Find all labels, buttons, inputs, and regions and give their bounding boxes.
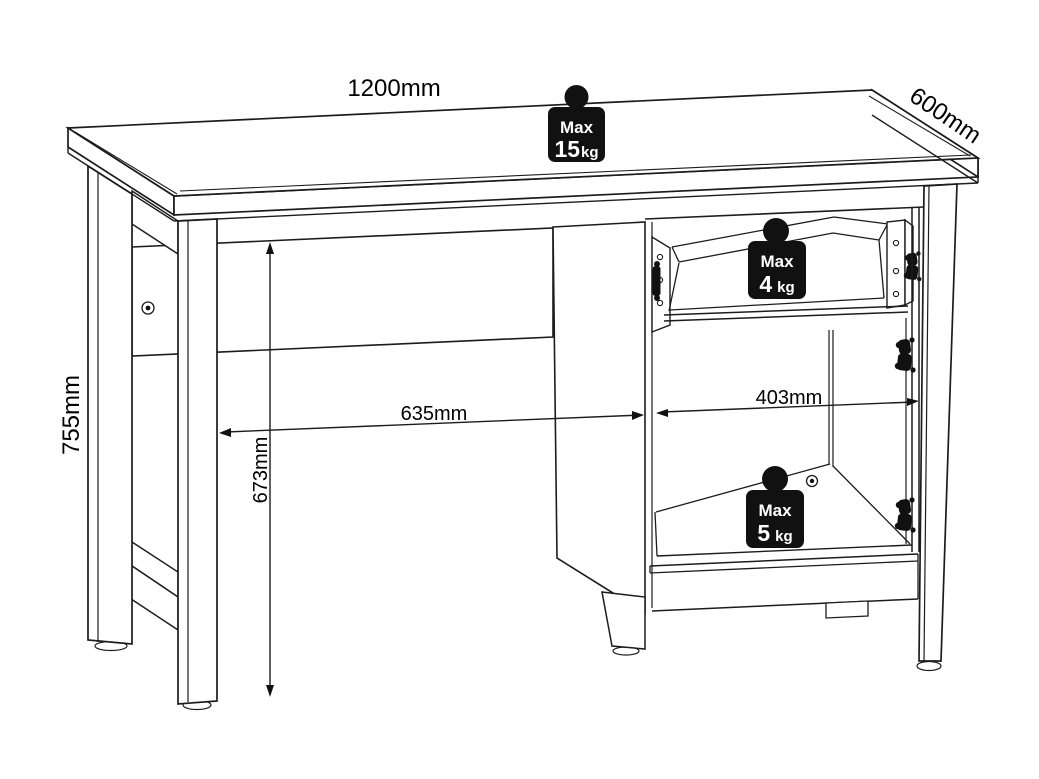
label-knee-height: 673mm	[250, 437, 272, 504]
arrow-right-icon	[907, 398, 919, 406]
arrow-left-icon	[219, 428, 231, 437]
pedestal	[553, 207, 924, 655]
label-top-width: 1200mm	[347, 75, 440, 102]
weight-icon	[565, 85, 589, 109]
arrow-down-icon	[266, 685, 274, 697]
arrow-left-icon	[656, 409, 668, 417]
technical-drawing-page: 1200mm 600mm 755mm 635mm 673mm 403mm Max…	[0, 0, 1039, 779]
max-load-prefix: Max	[758, 501, 792, 520]
label-cabinet-width: 403mm	[756, 387, 823, 409]
load-limit-desktop: Max 15kg	[548, 85, 605, 162]
label-knee-width: 635mm	[401, 403, 468, 425]
load-limit-drawer: Max 4kg	[748, 218, 806, 299]
back-left-leg	[88, 166, 132, 644]
front-foot	[602, 592, 645, 649]
label-overall-height: 755mm	[58, 375, 85, 455]
foot-pad	[917, 662, 941, 671]
weight-icon	[763, 218, 789, 244]
max-load-prefix: Max	[560, 118, 594, 137]
max-load-prefix: Max	[760, 252, 794, 271]
right-leg	[917, 184, 957, 671]
desktop	[68, 90, 978, 221]
pedestal-base	[602, 554, 918, 655]
runner-bracket-icon	[653, 266, 661, 296]
weight-icon	[762, 466, 788, 492]
front-left-leg	[178, 219, 217, 704]
drawer-side-cap	[887, 220, 905, 308]
rear-foot	[826, 601, 868, 618]
desk-drawing	[68, 90, 978, 710]
load-limit-cabinet: Max 5kg	[746, 466, 804, 548]
desk-diagram: 1200mm 600mm 755mm 635mm 673mm 403mm Max…	[0, 0, 1039, 779]
